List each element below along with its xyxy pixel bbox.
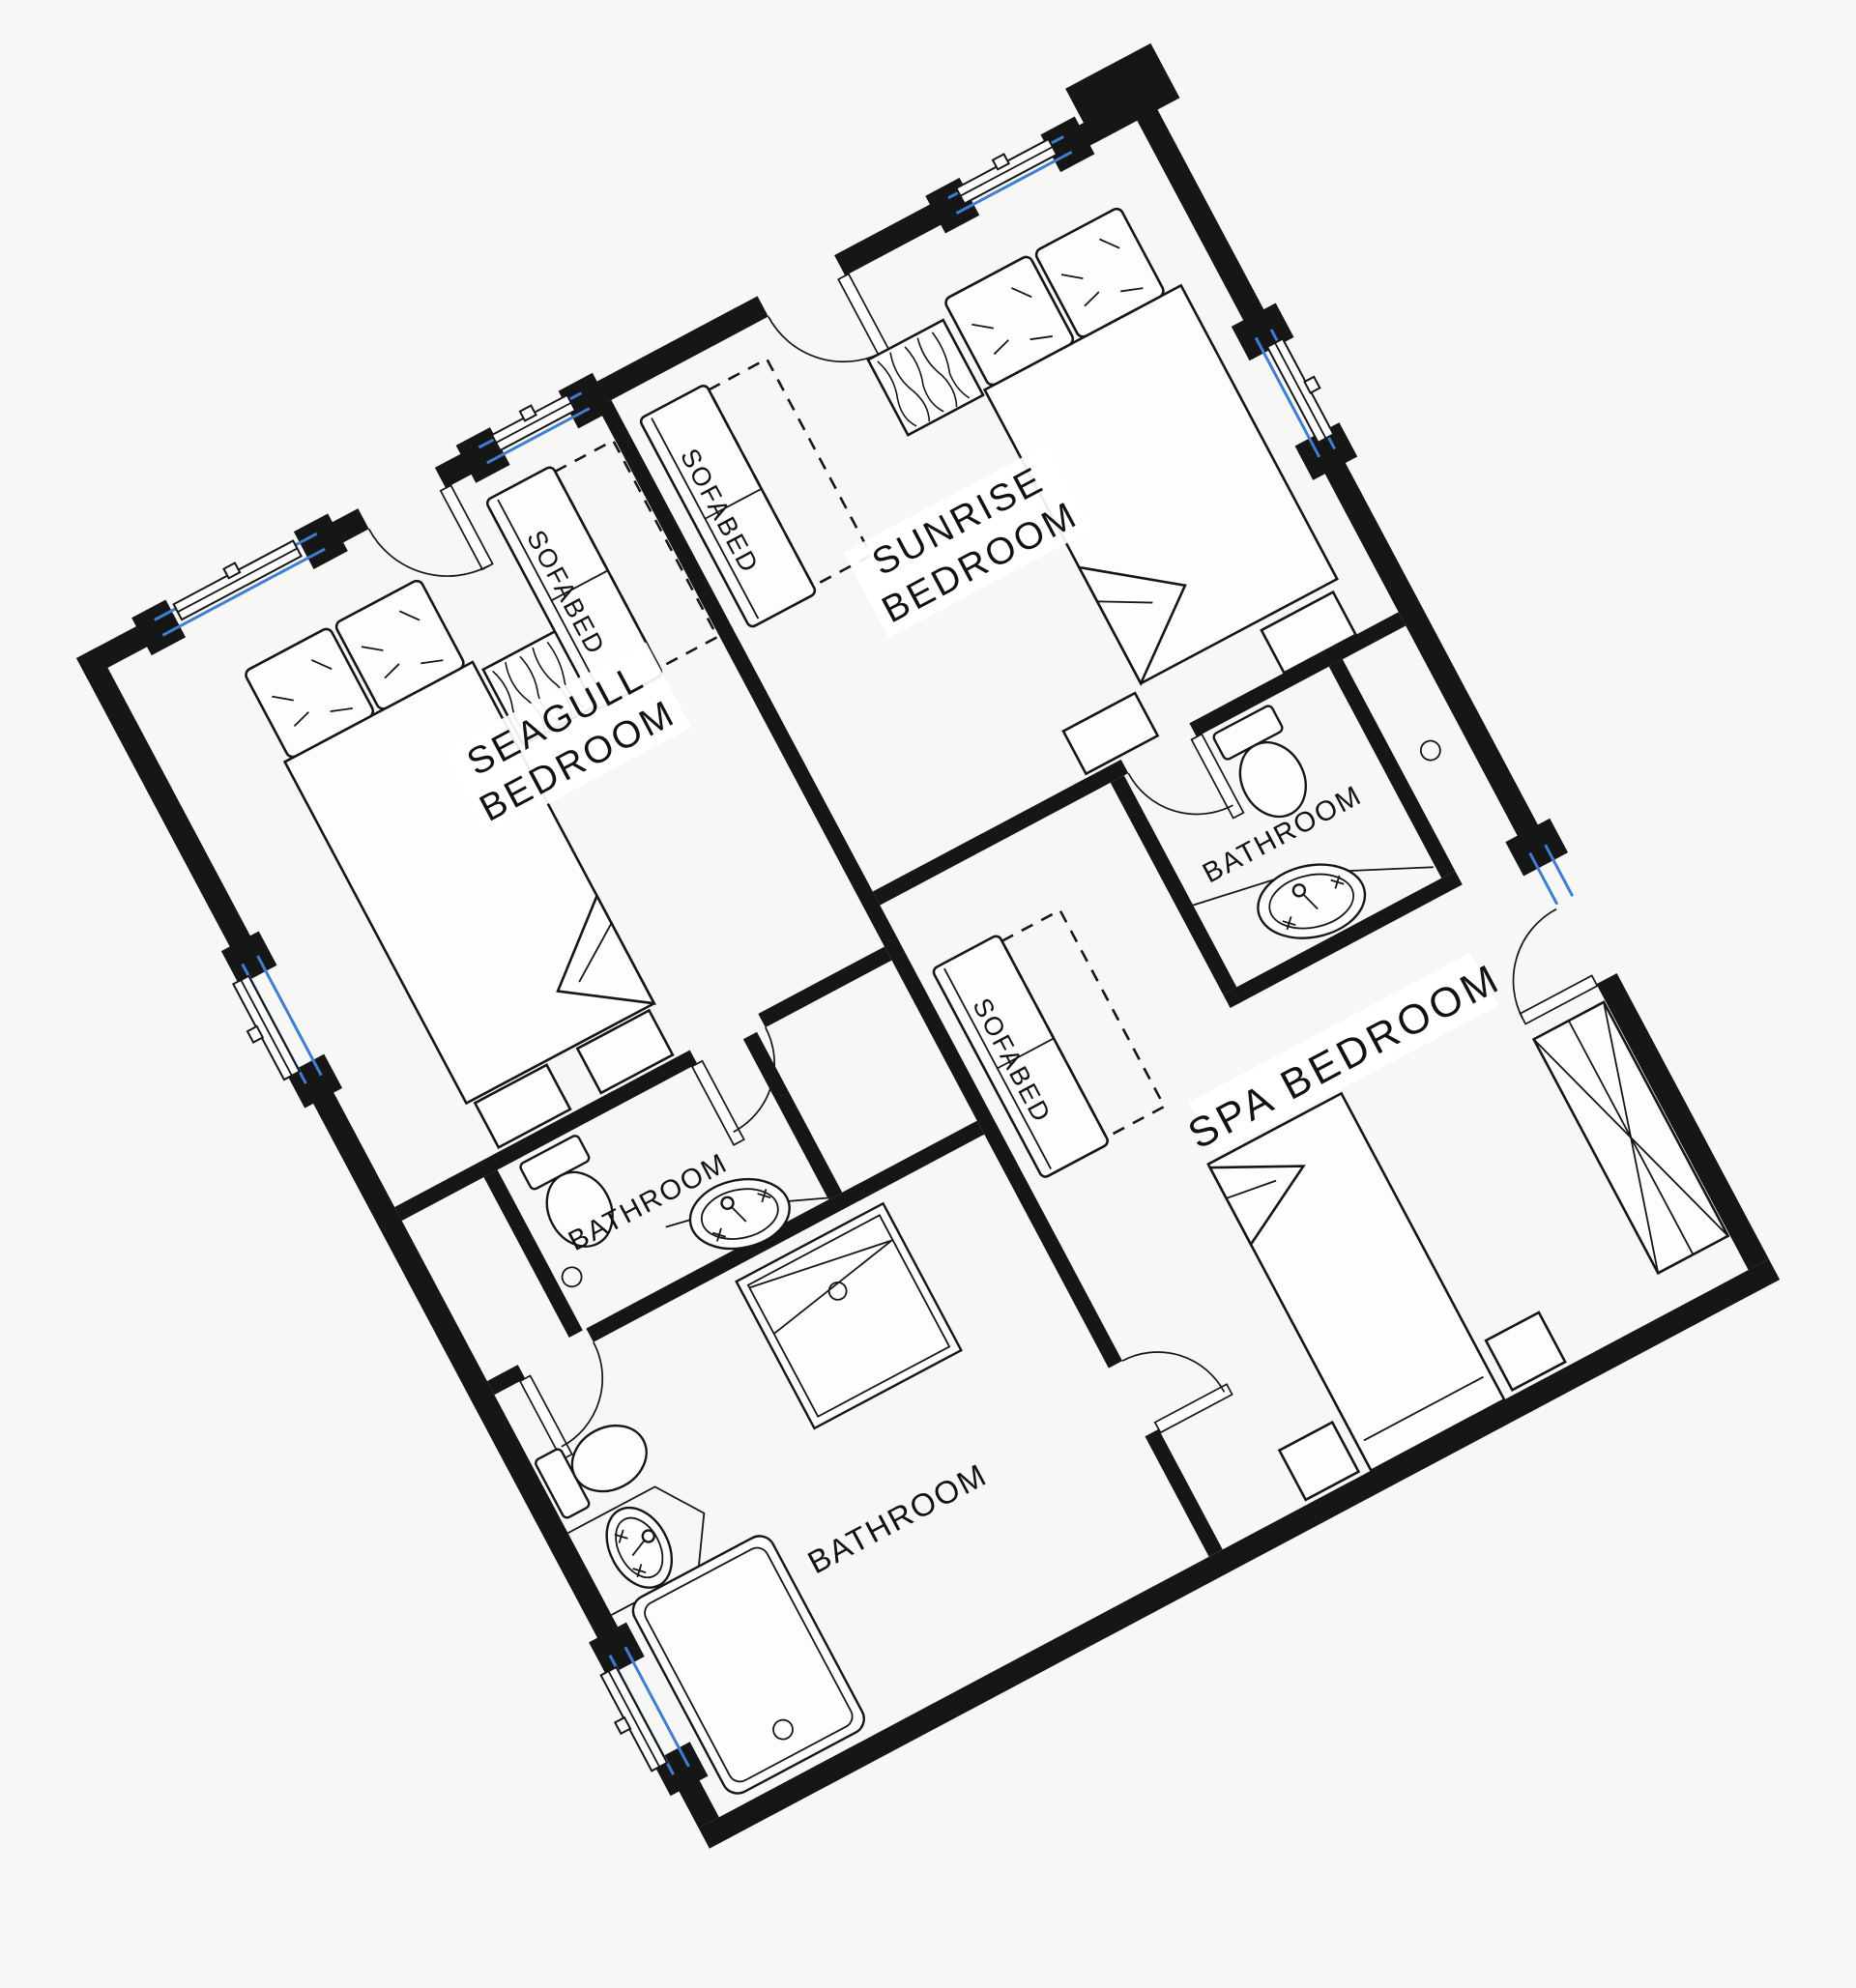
bed-double-spa	[1208, 1093, 1504, 1470]
rotated-plan: SEAGULL BEDROOM SOFABED	[37, 43, 1802, 1860]
bed-double-sunrise	[939, 198, 1337, 683]
sofabed-sunrise	[639, 353, 875, 628]
room-spa-bedroom: SPA BEDROOM SOFABED	[932, 699, 1747, 1542]
radiator-icon	[1267, 334, 1342, 443]
door-seagull-entry	[369, 485, 493, 607]
floor-plan-canvas: SEAGULL BEDROOM SOFABED	[0, 0, 1856, 1988]
walls	[49, 43, 1802, 1854]
floor-drain-icon	[559, 1264, 585, 1290]
radiator-icon	[488, 389, 575, 450]
floor-drain-icon	[1417, 737, 1443, 764]
radiator-icon	[593, 1667, 667, 1775]
radiator-icon	[170, 533, 302, 619]
floor-plan-page: SEAGULL BEDROOM SOFABED	[0, 0, 1856, 1988]
door-spa-to-bathroom	[1122, 1323, 1232, 1433]
door-sunrise-entry	[768, 274, 890, 394]
room-bathroom-main: BATHROOM	[501, 1203, 1096, 1807]
bathroom-label-main: BATHROOM	[801, 1456, 993, 1581]
radiator-icon	[225, 976, 300, 1084]
door-spa-entry	[1485, 909, 1597, 1024]
room-bathroom-sunrise: BATHROOM	[1127, 644, 1498, 994]
